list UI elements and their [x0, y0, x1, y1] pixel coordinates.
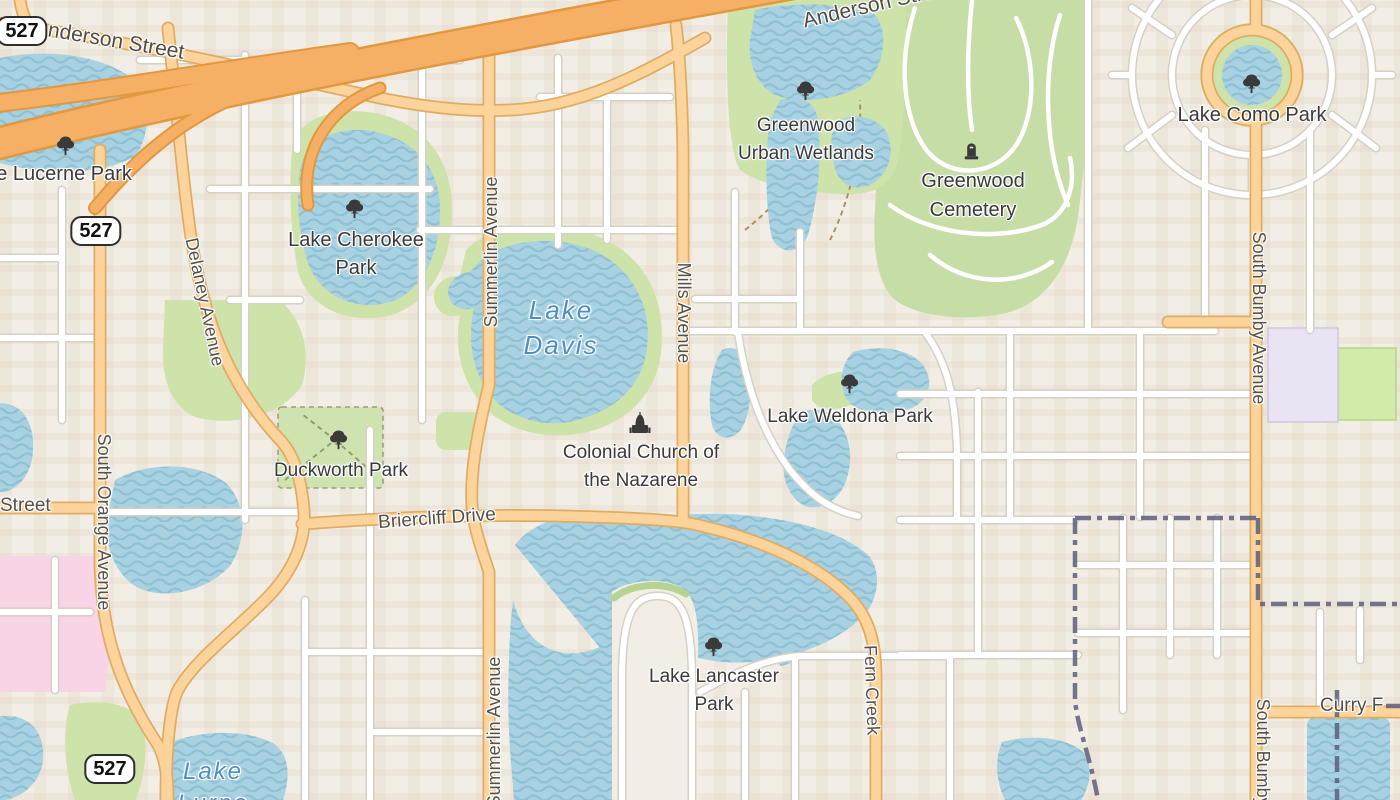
label-fern-creek: Fern Creek	[860, 645, 883, 736]
label-south-bumby-avenue: South Bumby Avenue	[1249, 232, 1269, 405]
label-south-orange-avenue: South Orange Avenue	[94, 434, 114, 611]
label-lake-weldona-park: Lake Weldona Park	[767, 404, 932, 430]
label-duckworth-park: Duckworth Park	[274, 458, 408, 484]
label-lake-davis: Lake Davis	[511, 293, 611, 363]
label-lake-lucerne-park: Lake Lucerne Park	[0, 161, 132, 187]
label-summerlin-avenue-2: Summerlin Avenue	[484, 657, 504, 800]
label-greenwood-cemetery: Greenwood Cemetery	[913, 167, 1033, 225]
route-shield-527: 527	[0, 16, 48, 46]
label-summerlin-avenue: Summerlin Avenue	[481, 177, 501, 328]
label-colonial-church: Colonial Church of the Nazarene	[561, 439, 721, 495]
label-greenwood-urban-wetlands: Greenwood Urban Wetlands	[731, 112, 881, 168]
label-lake-cherokee-park: Lake Cherokee Park	[281, 226, 431, 282]
church-icon	[630, 412, 651, 433]
map-canvas[interactable]: Lake Lucerne Park Lake Cherokee Park Gre…	[0, 0, 1400, 800]
label-south-bumby-avenue-2: South Bumby Avenue	[1253, 699, 1273, 800]
label-lake-lancaster-park: Lake Lancaster Park	[639, 663, 789, 719]
label-mills-avenue: Mills Avenue	[674, 263, 694, 364]
label-lake-lurna: Lake Lurna	[173, 756, 253, 800]
route-shield-527: 527	[70, 216, 121, 246]
label-street-partial: Street	[0, 496, 51, 516]
label-curry-partial: Curry F	[1320, 696, 1383, 716]
route-shield-527: 527	[84, 754, 135, 784]
label-lake-como-park: Lake Como Park	[1178, 102, 1327, 128]
